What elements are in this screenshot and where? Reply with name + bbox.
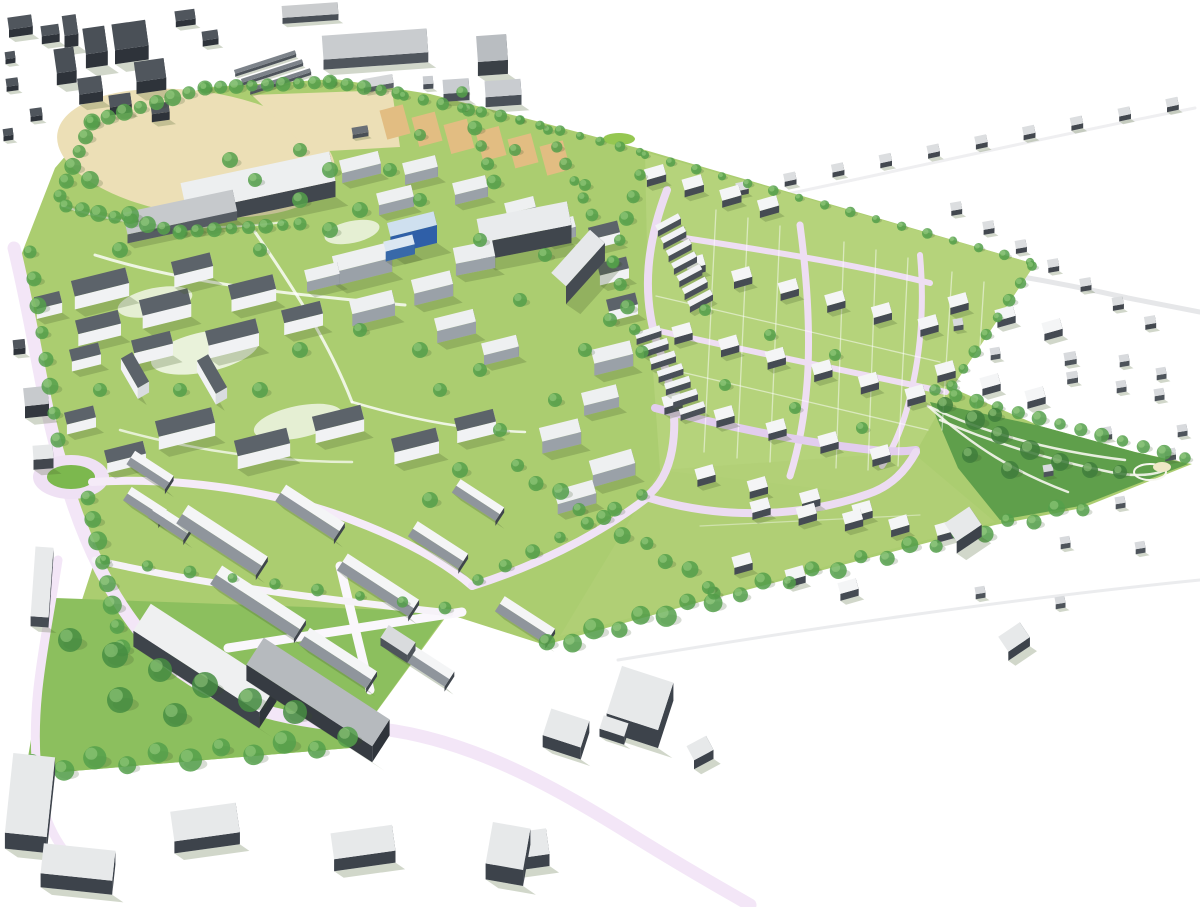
masterplan-rendering: [0, 0, 1200, 907]
masterplan-scene: [0, 0, 1200, 907]
